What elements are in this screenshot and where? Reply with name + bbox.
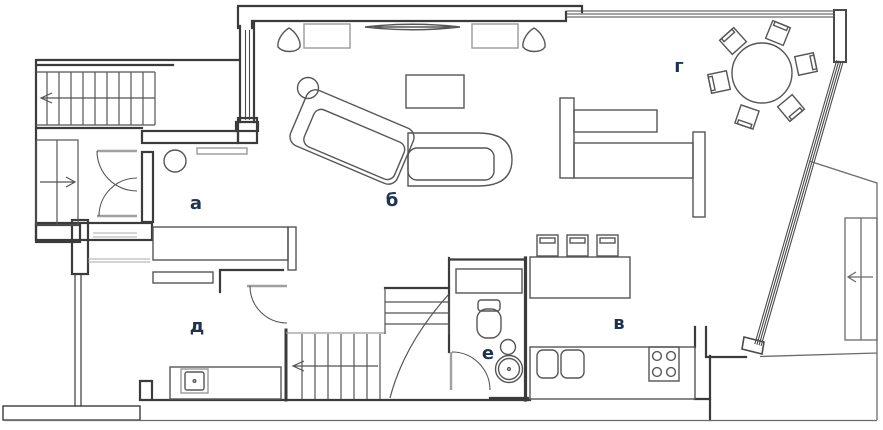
kitchen-bar-top: [530, 257, 630, 298]
staircase-upper: [36, 72, 155, 125]
hall-lamp: [164, 150, 186, 172]
washing-machine: [181, 369, 208, 393]
plant-icon: [278, 28, 300, 52]
shower-vanity: [456, 269, 522, 293]
hallway-furniture: [164, 148, 247, 172]
bathroom-fixtures: [456, 269, 523, 383]
room-label-b: б: [386, 190, 399, 211]
wardrobe: [153, 227, 288, 260]
wall-kitchen-right: [695, 327, 746, 420]
window-top-end-pillar: [834, 10, 846, 62]
floor-plan-page: а б в г д е: [0, 0, 883, 430]
bar-stool: [567, 235, 588, 256]
walls: [3, 6, 746, 420]
speaker-cabinet: [304, 24, 350, 48]
dining-chair: [766, 21, 791, 46]
bar-stool: [597, 235, 618, 256]
window-top-icon: [566, 11, 834, 17]
round-sink: [496, 356, 523, 383]
shelf: [153, 272, 213, 283]
stove: [649, 347, 679, 381]
room-label-d: д: [190, 316, 205, 337]
room-label-g: г: [674, 56, 683, 77]
wall-bottom-left-band: [3, 406, 140, 420]
kitchen-sink: [537, 350, 558, 378]
small-basin: [501, 340, 516, 355]
room-d-door: [247, 286, 287, 323]
wall-hall-top-band: [142, 131, 238, 143]
plant-icon: [523, 28, 545, 52]
wall-room-d-door: [220, 270, 283, 292]
vestibule-double-door: [97, 151, 137, 216]
terrace-outline: [5, 161, 877, 421]
speaker-cabinet: [472, 24, 518, 48]
staircase-middle: [286, 288, 449, 399]
sofa-straight: [408, 133, 512, 186]
bar-stool: [537, 235, 558, 256]
room-label-v: в: [613, 313, 624, 334]
coffee-table: [406, 75, 464, 108]
staircase-lower-left: [36, 140, 78, 225]
stair-arrow-icon: [41, 93, 155, 103]
windows: [246, 10, 847, 354]
dining-chair: [795, 53, 818, 76]
dining-chair: [735, 105, 759, 129]
room-labels: а б в г д е: [190, 56, 684, 364]
tv-panel: [365, 24, 460, 30]
wall-block-west: [236, 122, 258, 131]
dining-chair: [708, 71, 731, 94]
room-label-a: а: [190, 193, 202, 214]
wall-rail: [75, 274, 81, 406]
kitchen-sink: [561, 350, 584, 378]
sofa-chaise: [287, 87, 417, 188]
kitchen-counter: [530, 347, 695, 399]
wall-west-living: [240, 23, 254, 122]
dining-chair: [778, 95, 805, 122]
wall-vestibule: [142, 152, 153, 222]
wardrobe-end: [288, 227, 296, 270]
hall-shelf: [197, 148, 247, 154]
dining-table: [732, 43, 792, 103]
dining-furniture: [708, 21, 818, 129]
bar-counter-unit: [560, 98, 705, 217]
stair-arrow-icon: [293, 361, 378, 371]
floor-lamp: [298, 78, 319, 99]
toilet: [477, 300, 501, 338]
terrace-stairs: [845, 218, 877, 340]
floor-plan-drawing: а б в г д е: [0, 0, 883, 430]
shelf-lines: [88, 233, 150, 262]
window-west-inner: [246, 30, 250, 120]
room-label-e: е: [482, 343, 494, 364]
room-d-furniture: [88, 227, 296, 399]
living-room-furniture: [278, 24, 545, 187]
wall-bottom: [140, 381, 710, 400]
